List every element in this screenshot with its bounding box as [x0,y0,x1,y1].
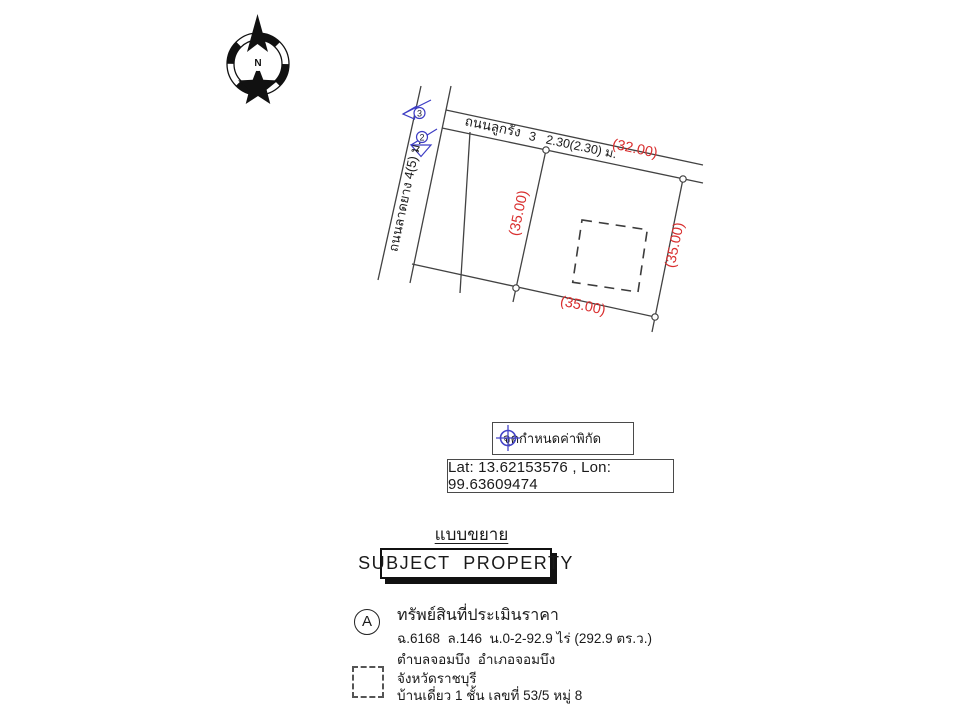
property-title: ทรัพย์สินที่ประเมินราคา [397,603,559,628]
building-footprint-dashed-square [573,220,648,292]
top-road-lower-edge [442,128,703,183]
corner-node [680,176,686,182]
latlon-value: Lat: 13.62153576 , Lon: 99.63609474 [448,459,673,493]
top-road-width-label: 3 2.30(2.30) ม. [528,129,619,161]
survey-marker-2-label: 2 [419,133,424,143]
parcel-divider [460,132,470,293]
property-deed-info: ฉ.6168 ล.146 น.0-2-92.9 ไร่ (292.9 ตร.ว.… [397,627,652,649]
top-road-name-label: ถนนลูกรัง [463,113,522,140]
subject-property-label: SUBJECT PROPERTY [358,553,574,574]
coordinate-legend-box: จุดกำหนดค่าพิกัด [492,422,634,455]
dimension-top-label: (32.00) [611,136,659,161]
corner-node [652,314,658,320]
dimension-left-label: (35.00) [506,189,531,237]
property-marker-a-label: A [362,613,372,630]
left-road-name-label: ถนนลาดยาง 4(5) ม. [386,139,424,253]
section-title: แบบขยาย [411,521,532,548]
dimension-right-label: (35.00) [662,221,687,269]
survey-marker-3-label: 3 [417,109,422,119]
property-building-info: บ้านเดี่ยว 1 ชั้น เลขที่ 53/5 หมู่ 8 [397,684,582,706]
parcel-bottom-boundary [412,264,655,317]
property-marker-a: A [354,609,380,635]
subject-property-box: SUBJECT PROPERTY [380,548,552,579]
compass-rose-icon: N [227,14,289,104]
latlon-box: Lat: 13.62153576 , Lon: 99.63609474 [447,459,674,493]
parcel-lines [412,132,683,332]
corner-node [513,285,519,291]
corner-node [543,147,549,153]
dimension-bottom-label: (35.00) [559,293,607,318]
coordinate-crosshair-icon [493,423,523,453]
compass-n-label: N [254,58,261,69]
appraisal-map-page: N [0,0,960,720]
road-lines [378,86,703,283]
building-legend-icon [352,666,384,698]
